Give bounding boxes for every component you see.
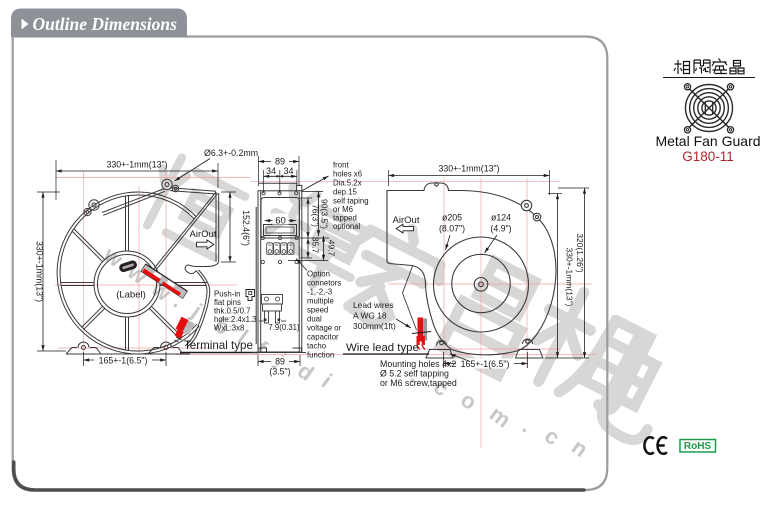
svg-text:connetors: connetors	[307, 279, 341, 288]
svg-text:320(1.26"): 320(1.26")	[575, 233, 585, 273]
svg-text:AirOut: AirOut	[393, 215, 420, 226]
svg-text:dual: dual	[307, 315, 322, 324]
svg-text:G180-11: G180-11	[682, 149, 734, 164]
svg-text:front: front	[333, 161, 349, 170]
svg-text:(3.5"): (3.5")	[269, 367, 290, 377]
svg-text:Lead wires: Lead wires	[353, 300, 394, 310]
svg-text:tacho: tacho	[307, 342, 327, 351]
svg-text:(Label): (Label)	[116, 290, 146, 301]
svg-text:AirOut: AirOut	[190, 229, 217, 240]
svg-text:dep.15: dep.15	[333, 188, 358, 197]
svg-text:Metal Fan Guard: Metal Fan Guard	[655, 133, 760, 149]
svg-text:-1,-2,-3: -1,-2,-3	[307, 288, 332, 297]
svg-text:Mounting holes 4x2: Mounting holes 4x2	[380, 359, 456, 369]
svg-text:Ø6.3+-0.2mm: Ø6.3+-0.2mm	[204, 148, 258, 158]
svg-text:Wire lead type: Wire lead type	[346, 342, 419, 354]
svg-text:Terminal type: Terminal type	[184, 339, 253, 352]
svg-text:49.7: 49.7	[327, 240, 337, 257]
svg-text:76(3"): 76(3")	[311, 204, 321, 227]
svg-text:Option: Option	[307, 270, 330, 279]
svg-text:35.7: 35.7	[311, 237, 321, 254]
svg-text:capacitor: capacitor	[307, 333, 339, 342]
svg-text:165+-1(6.5"): 165+-1(6.5")	[99, 356, 148, 366]
svg-text:voltage or: voltage or	[307, 324, 342, 333]
svg-text:89: 89	[275, 157, 285, 167]
svg-text:holes x6: holes x6	[333, 170, 362, 179]
svg-text:ø124: ø124	[491, 213, 511, 223]
svg-text:330+-1mm(13"): 330+-1mm(13")	[565, 248, 575, 307]
svg-text:(4.9"): (4.9")	[490, 224, 511, 234]
svg-text:330+-1mm(13"): 330+-1mm(13")	[35, 241, 45, 302]
svg-text:34: 34	[283, 166, 293, 176]
svg-text:ø205: ø205	[442, 213, 462, 223]
svg-text:152.4(6"): 152.4(6")	[241, 210, 251, 246]
svg-text:multiple: multiple	[307, 297, 334, 306]
svg-text:7.9(0.31): 7.9(0.31)	[268, 323, 300, 332]
svg-text:A WG 18: A WG 18	[353, 311, 387, 321]
svg-text:90(3.5"): 90(3.5")	[320, 199, 330, 229]
svg-text:Dia.5.2x: Dia.5.2x	[333, 179, 362, 188]
svg-text:speed: speed	[307, 306, 328, 315]
svg-text:330+-1mm(13"): 330+-1mm(13")	[438, 164, 499, 174]
svg-text:330+-1mm(13"): 330+-1mm(13")	[106, 160, 167, 170]
svg-text:optional: optional	[333, 222, 361, 231]
svg-text:300mm(1ft): 300mm(1ft)	[353, 321, 396, 331]
svg-text:89: 89	[275, 357, 285, 367]
svg-text:WxL:3x8: WxL:3x8	[214, 324, 244, 333]
svg-text:60: 60	[275, 216, 286, 227]
svg-text:RoHS: RoHS	[684, 441, 712, 452]
svg-text:Ø 5.2 self tapping: Ø 5.2 self tapping	[380, 369, 449, 379]
svg-text:34: 34	[266, 166, 276, 176]
svg-text:function: function	[307, 351, 334, 360]
svg-text:or M6 screw,tapped: or M6 screw,tapped	[380, 378, 457, 388]
svg-text:(8.07"): (8.07")	[439, 224, 465, 234]
svg-text:Outline Dimensions: Outline Dimensions	[33, 14, 178, 34]
